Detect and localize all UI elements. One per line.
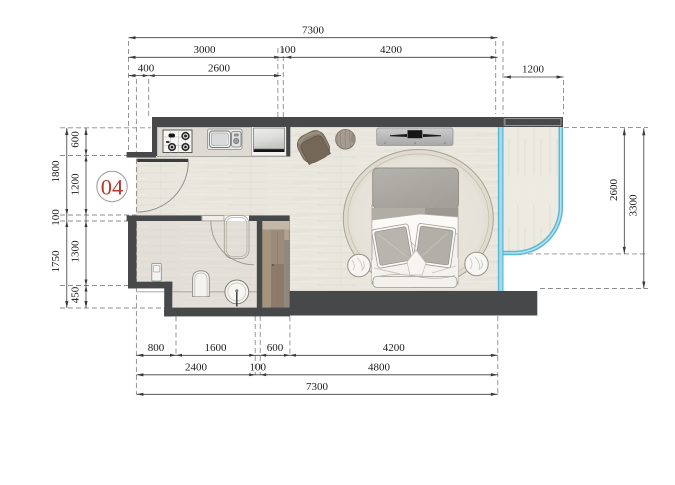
svg-text:3300: 3300 [628, 194, 640, 217]
svg-text:4800: 4800 [368, 362, 391, 374]
svg-text:2400: 2400 [185, 362, 208, 374]
svg-text:04: 04 [101, 174, 124, 199]
svg-text:400: 400 [138, 63, 155, 75]
svg-text:4200: 4200 [380, 44, 403, 56]
svg-text:3000: 3000 [194, 44, 217, 56]
svg-text:100: 100 [249, 362, 266, 374]
svg-text:600: 600 [70, 131, 82, 148]
svg-text:2600: 2600 [208, 63, 231, 75]
svg-text:1200: 1200 [522, 64, 545, 76]
svg-text:600: 600 [267, 342, 284, 354]
svg-text:7300: 7300 [306, 381, 329, 393]
svg-text:1600: 1600 [205, 342, 228, 354]
svg-text:450: 450 [70, 286, 82, 303]
svg-text:2600: 2600 [608, 179, 620, 202]
svg-text:100: 100 [50, 209, 62, 226]
svg-text:800: 800 [148, 342, 165, 354]
svg-text:1300: 1300 [70, 240, 82, 263]
svg-text:100: 100 [279, 44, 296, 56]
svg-text:7300: 7300 [302, 25, 325, 37]
svg-text:1800: 1800 [50, 160, 62, 183]
svg-text:4200: 4200 [383, 342, 406, 354]
svg-text:1200: 1200 [70, 173, 82, 196]
svg-text:1750: 1750 [50, 250, 62, 273]
